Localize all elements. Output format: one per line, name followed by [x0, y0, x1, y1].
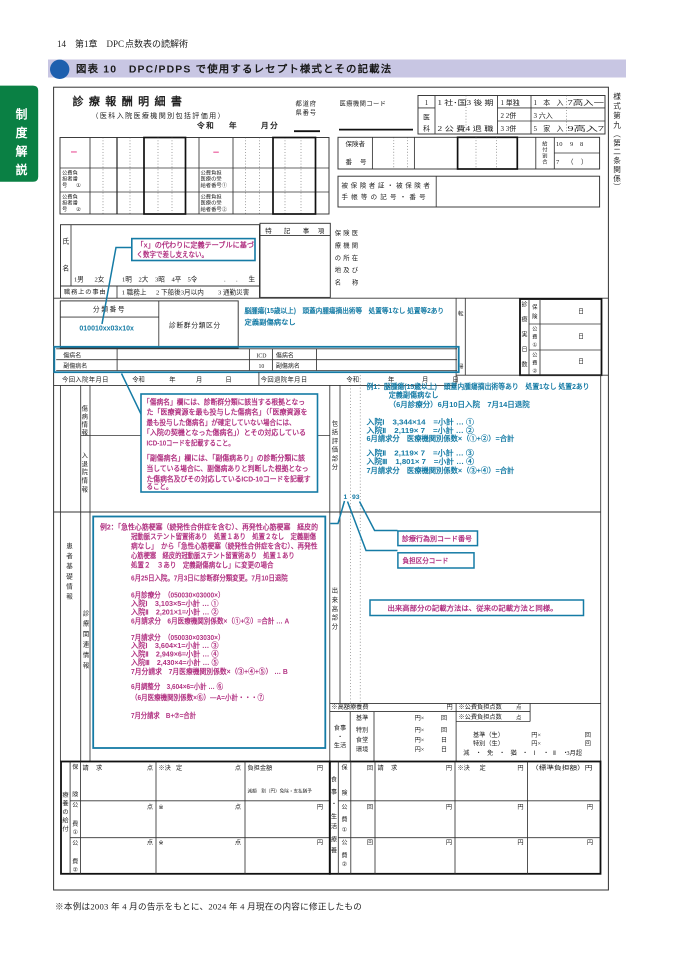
svg-text:副傷病名: 副傷病名 [63, 362, 87, 370]
svg-text:療: 療 [62, 791, 68, 799]
svg-text:情: 情 [82, 475, 89, 484]
svg-text:6月請求分 医療機関別係数×（①+②）=合計: 6月請求分 医療機関別係数×（①+②）=合計 [367, 434, 516, 443]
svg-text:氏: 氏 [62, 237, 69, 246]
svg-text:6月診療分 （050030×03000×）: 6月診療分 （050030×03000×） [131, 590, 225, 599]
svg-text:点: 点 [235, 764, 241, 772]
svg-text:例1：脳腫瘍(15歳以上) 頭蓋内腫瘍摘出術等あり 処置1な: 例1：脳腫瘍(15歳以上) 頭蓋内腫瘍摘出術等あり 処置1なし 処置2あり [367, 382, 590, 391]
svg-text:7高入一: 7高入一 [568, 98, 605, 107]
svg-text:（6月診療分）6月10日入院 7月14日退院: （6月診療分）6月10日入院 7月14日退院 [389, 400, 531, 409]
svg-text:回: 回 [367, 840, 373, 847]
svg-text:回: 回 [367, 765, 373, 772]
svg-text:円: 円 [517, 765, 523, 772]
svg-text:2 公 費4 退 職: 2 公 費4 退 職 [438, 124, 494, 133]
svg-text:1 社･国3 後 期: 1 社･国3 後 期 [438, 98, 494, 107]
svg-text:公費負担: 公費負担 [201, 169, 223, 177]
svg-text:患: 患 [66, 541, 73, 550]
svg-text:数: 数 [521, 361, 527, 369]
svg-text:※公費負担点数: ※公費負担点数 [459, 713, 503, 721]
svg-text:円: 円 [587, 840, 593, 847]
svg-text:項: 項 [318, 227, 325, 235]
svg-text:6月調整分 3,604×6=小計 … ⑥: 6月調整分 3,604×6=小計 … ⑥ [131, 682, 224, 691]
svg-text:療: 療 [83, 619, 90, 628]
svg-text:度: 度 [16, 126, 28, 140]
svg-text:減・免・猶・Ⅰ・Ⅱ・3月超: 減・免・猶・Ⅰ・Ⅱ・3月超 [463, 749, 582, 757]
svg-text:険: 険 [532, 312, 538, 320]
svg-text:診: 診 [521, 301, 527, 309]
svg-text:傷: 傷 [82, 403, 89, 412]
svg-text:給: 給 [62, 817, 69, 825]
svg-text:公費負: 公費負 [62, 193, 78, 201]
svg-text:出来高部分の記載方法は、従来の記載方法と同様。: 出来高部分の記載方法は、従来の記載方法と同様。 [388, 604, 558, 613]
svg-text:1: 1 [425, 99, 429, 107]
svg-text:条: 条 [613, 155, 621, 165]
svg-text:・: ・ [331, 801, 337, 808]
svg-text:脳腫瘍(15歳以上) 頭蓋内腫瘍摘出術等 処置等1なし 処置: 脳腫瘍(15歳以上) 頭蓋内腫瘍摘出術等 処置等1なし 処置等2あり [244, 306, 444, 315]
svg-text:公: 公 [72, 840, 78, 847]
svg-text:回: 回 [585, 740, 591, 747]
svg-text:解: 解 [16, 145, 28, 159]
svg-text:点: 点 [235, 803, 241, 811]
svg-text:円×: 円× [415, 746, 425, 753]
svg-text:最も投与した傷病名」が確定していない場合には、: 最も投与した傷病名」が確定していない場合には、 [147, 418, 296, 427]
svg-text:9高入7: 9高入7 [568, 124, 605, 133]
svg-text:図表 10 DPC/PDPS で使用するレセプト様式とその記: 図表 10 DPC/PDPS で使用するレセプト様式とその記載法 [76, 63, 392, 76]
svg-text:分: 分 [332, 621, 339, 630]
svg-text:報: 報 [83, 661, 90, 669]
svg-text:冠動脈ステント留置術あり 処置１あり 処置２なし 定義副傷: 冠動脈ステント留置術あり 処置１あり 処置２なし 定義副傷 [131, 532, 317, 541]
svg-text:心筋梗塞 経皮的冠動脈ステント留置術あり 処置１あり: 心筋梗塞 経皮的冠動脈ステント留置術あり 処置１あり [131, 551, 295, 560]
svg-text:円×: 円× [415, 737, 425, 744]
svg-text:情: 情 [83, 650, 90, 659]
svg-text:公費負: 公費負 [62, 169, 78, 177]
svg-text:円×: 円× [415, 727, 425, 734]
svg-text:点: 点 [147, 764, 153, 772]
svg-text:7月分請求 B+⑦=合計: 7月分請求 B+⑦=合計 [131, 711, 197, 720]
svg-text:①: ① [342, 827, 347, 834]
svg-text:円: 円 [517, 840, 523, 847]
svg-text:点: 点 [147, 803, 153, 811]
svg-text:付: 付 [62, 825, 68, 833]
svg-text:関: 関 [83, 630, 89, 638]
svg-text:公: 公 [72, 802, 78, 809]
svg-text:︵: ︵ [613, 130, 621, 139]
svg-text:環境: 環境 [356, 745, 368, 753]
svg-text:3 六入: 3 六入 [534, 111, 553, 120]
svg-text:（標準負担額）円: （標準負担額）円 [531, 764, 593, 772]
svg-text:地及び: 地及び [335, 265, 361, 274]
svg-text:負担区分コード: 負担区分コード [403, 556, 449, 565]
svg-text:点: 点 [516, 704, 522, 711]
svg-text:給: 給 [542, 140, 548, 148]
svg-text:93: 93 [352, 494, 360, 501]
svg-text:療: 療 [331, 836, 337, 844]
svg-text:特別（生）: 特別（生） [473, 739, 504, 747]
svg-text:負担金額: 負担金額 [248, 764, 273, 772]
svg-text:医療の受: 医療の受 [201, 199, 223, 207]
svg-text:点: 点 [147, 839, 153, 847]
svg-text:括: 括 [332, 427, 339, 436]
svg-text:1098: 1098 [556, 141, 583, 148]
svg-text:制: 制 [16, 108, 28, 122]
svg-text:1 単独: 1 単独 [501, 98, 520, 107]
svg-text:食事: 食事 [334, 724, 346, 732]
svg-text:（医科入院医療機関別包括評価用）: （医科入院医療機関別包括評価用） [92, 111, 226, 120]
svg-text:第: 第 [613, 110, 621, 120]
svg-text:当している場合に、副傷病ありと判断した根拠となっ: 当している場合に、副傷病ありと判断した根拠となっ [147, 464, 309, 473]
svg-text:①: ① [73, 829, 78, 836]
svg-text:円: 円 [317, 804, 323, 811]
svg-text:円: 円 [446, 765, 452, 772]
svg-text:定義副傷病なし: 定義副傷病なし [388, 391, 439, 400]
svg-text:名: 名 [62, 264, 69, 273]
svg-text:被保険者証・被保険者: 被保険者証・被保険者 [342, 180, 433, 189]
svg-text:科: 科 [423, 124, 430, 133]
svg-text:010010xx03x10x: 010010xx03x10x [79, 326, 134, 333]
svg-text:基準: 基準 [356, 714, 368, 722]
svg-text:関: 関 [613, 165, 621, 174]
svg-text:く数字で差し支えない。: く数字で差し支えない。 [137, 250, 209, 259]
svg-text:円: 円 [587, 804, 593, 811]
svg-text:価: 価 [332, 445, 338, 454]
svg-text:円×: 円× [531, 740, 541, 747]
svg-text:報: 報 [82, 429, 89, 437]
svg-text:高: 高 [332, 604, 338, 613]
svg-text:医療の受: 医療の受 [201, 175, 223, 183]
svg-text:説: 説 [16, 163, 28, 177]
svg-text:「傷病名」欄には、診断群分類に該当する根拠となっ: 「傷病名」欄には、診断群分類に該当する根拠となっ [143, 397, 305, 406]
svg-text:保: 保 [341, 764, 347, 772]
svg-text:保: 保 [72, 763, 78, 771]
svg-text:診療行為別コード番号: 診療行為別コード番号 [402, 534, 472, 543]
svg-text:入院Ⅲ 1,801× 7 =小計 … ④: 入院Ⅲ 1,801× 7 =小計 … ④ [365, 457, 474, 466]
svg-text:生: 生 [331, 813, 337, 821]
svg-text:3 3併: 3 3併 [501, 124, 517, 133]
svg-text:報: 報 [66, 593, 73, 601]
svg-text:回: 回 [441, 727, 447, 734]
svg-text:公費負担: 公費負担 [201, 193, 223, 201]
svg-text:入院Ⅱ 2,201×1=小計 … ②: 入院Ⅱ 2,201×1=小計 … ② [130, 608, 219, 617]
svg-text:※: ※ [159, 804, 164, 811]
svg-text:険: 険 [341, 789, 347, 797]
svg-text:養: 養 [331, 847, 337, 855]
svg-text:日: 日 [578, 359, 584, 366]
svg-text:た「医療資源を最も投与した傷病名」（「医療資源を: た「医療資源を最も投与した傷病名」（「医療資源を [147, 408, 308, 417]
svg-text:円×: 円× [415, 715, 425, 722]
svg-text:ICD: ICD [257, 353, 267, 359]
svg-text:手帳等の記号・番号: 手帳等の記号・番号 [342, 192, 429, 201]
svg-text:回: 回 [585, 732, 591, 739]
svg-text:6月請求分 6月医療機関別係数×（①+②）=合計 … A: 6月請求分 6月医療機関別係数×（①+②）=合計 … A [131, 616, 289, 625]
svg-text:※本例は2003 年 4 月の告示をもとに、2024 年 4: ※本例は2003 年 4 月の告示をもとに、2024 年 4 月現在の内容に修正… [55, 901, 362, 912]
svg-text:入院Ⅲ 2,430×4=小計 … ⑤: 入院Ⅲ 2,430×4=小計 … ⑤ [130, 658, 219, 667]
svg-text:県番号: 県番号 [296, 109, 317, 117]
svg-text:円: 円 [317, 840, 323, 847]
svg-text:※高額療養費: ※高額療養費 [331, 703, 368, 711]
svg-text:「x」の代わりに定義テーブルに基づ: 「x」の代わりに定義テーブルに基づ [137, 241, 255, 250]
svg-text:②: ② [342, 861, 347, 868]
svg-text:公: 公 [532, 353, 538, 359]
svg-text:費: 費 [72, 820, 78, 828]
svg-text:礎: 礎 [66, 571, 73, 580]
svg-text:第: 第 [613, 138, 621, 148]
svg-text:医: 医 [423, 114, 430, 122]
svg-text:職務上の事由: 職務上の事由 [64, 288, 107, 296]
svg-text:「入院の契機となった傷病名」）とその対応している: 「入院の契機となった傷病名」）とその対応している [143, 428, 306, 437]
svg-text:出: 出 [332, 585, 338, 594]
svg-text:※: ※ [159, 840, 164, 847]
svg-text:費: 費 [532, 333, 537, 341]
svg-text:都道府: 都道府 [296, 99, 317, 108]
svg-text:の所在: の所在 [335, 253, 361, 262]
svg-text:連: 連 [83, 640, 90, 649]
svg-text:担者番: 担者番 [62, 199, 79, 207]
svg-text:報: 報 [82, 485, 89, 493]
svg-text:14 第1章 DPC点数表の読解術: 14 第1章 DPC点数表の読解術 [57, 38, 188, 49]
svg-text:（6月医療機関別係数×⑥）―A=小計・・・⑦: （6月医療機関別係数×⑥）―A=小計・・・⑦ [131, 693, 265, 702]
svg-text:費: 費 [341, 852, 347, 860]
svg-text:二: 二 [613, 147, 621, 156]
svg-text:②: ② [73, 867, 78, 874]
svg-text:減額 割（円）免除・支払猶予: 減額 割（円）免除・支払猶予 [248, 788, 313, 795]
svg-text:診: 診 [83, 608, 90, 617]
svg-text:6月25日入院。7月3日に診断群分類変更。7月10日退院: 6月25日入院。7月3日に診断群分類変更。7月10日退院 [131, 574, 288, 583]
svg-text:評: 評 [332, 436, 339, 445]
svg-text:記: 記 [284, 226, 291, 235]
svg-text:療: 療 [521, 316, 527, 324]
svg-text:①: ① [532, 343, 537, 349]
svg-text:付: 付 [542, 146, 547, 154]
svg-text:給者番号②: 給者番号② [201, 205, 228, 213]
svg-text:回: 回 [441, 715, 447, 722]
svg-text:例2：「急性心筋梗塞（続発性合併症を含む）、再発性心筋梗塞: 例2：「急性心筋梗塞（続発性合併症を含む）、再発性心筋梗塞 経皮的 [100, 522, 318, 531]
svg-text:費: 費 [72, 858, 78, 866]
svg-text:様: 様 [613, 91, 621, 101]
svg-text:医療機関コード: 医療機関コード [340, 99, 387, 108]
svg-text:費: 費 [341, 816, 347, 824]
svg-text:令和年月分: 令和年月分 [196, 120, 279, 130]
svg-text:部: 部 [332, 453, 338, 462]
svg-text:来: 来 [332, 596, 339, 604]
svg-text:・: ・ [337, 734, 343, 741]
svg-text:事: 事 [331, 788, 337, 796]
svg-text:式: 式 [613, 101, 621, 111]
svg-text:日: 日 [521, 347, 527, 354]
svg-text:円: 円 [447, 704, 453, 711]
svg-text:生活: 生活 [334, 741, 346, 749]
svg-text:円: 円 [317, 765, 323, 772]
svg-text:特別: 特別 [356, 726, 368, 734]
svg-text:院: 院 [82, 467, 89, 476]
svg-text:険: 険 [72, 791, 78, 799]
svg-text:7月分請求 7月医療機関別係数×（③+④+⑤） … B: 7月分請求 7月医療機関別係数×（③+④+⑤） … B [131, 667, 288, 676]
svg-text:10: 10 [259, 364, 265, 370]
svg-text:処置２ ３あり 定義副傷病なし」に変更の場合: 処置２ ３あり 定義副傷病なし」に変更の場合 [130, 561, 274, 570]
svg-text:円: 円 [517, 804, 523, 811]
svg-text:傷病名: 傷病名 [63, 351, 81, 359]
svg-text:分類番号: 分類番号 [93, 305, 126, 314]
svg-text:7月請求分 医療機関別係数×（③+④）=合計: 7月請求分 医療機関別係数×（③+④）=合計 [367, 466, 516, 475]
svg-text:病: 病 [82, 411, 89, 420]
svg-text:実: 実 [521, 331, 527, 339]
svg-text:病なし」 から「急性心筋梗塞（続発性合併症を含む）、再発性: 病なし」 から「急性心筋梗塞（続発性合併症を含む）、再発性 [131, 542, 318, 551]
svg-text:食: 食 [331, 776, 338, 784]
svg-text:回: 回 [367, 804, 373, 811]
svg-text:︶: ︶ [613, 182, 621, 192]
svg-text:診療報酬明細書: 診療報酬明細書 [73, 94, 188, 108]
svg-text:分: 分 [332, 462, 339, 471]
svg-text:今回退院年月日: 今回退院年月日 [261, 375, 308, 384]
svg-text:の: の [62, 809, 68, 816]
svg-text:保険者: 保険者 [346, 139, 366, 148]
svg-text:保険医: 保険医 [335, 228, 361, 237]
svg-text:事: 事 [303, 226, 310, 235]
svg-text:情: 情 [66, 581, 73, 590]
svg-text:転: 転 [458, 311, 464, 318]
svg-text:※公費負担点数: ※公費負担点数 [459, 703, 503, 711]
svg-text:副傷病名: 副傷病名 [276, 362, 300, 370]
svg-text:今回入院年月日: 今回入院年月日 [62, 375, 109, 384]
svg-text:ICD-10コードを記載すること。: ICD-10コードを記載すること。 [147, 439, 235, 448]
svg-text:定義副傷病なし: 定義副傷病なし [245, 318, 296, 327]
svg-text:日: 日 [441, 746, 447, 753]
svg-text:退: 退 [82, 459, 89, 468]
svg-text:情: 情 [82, 420, 89, 429]
svg-text:日: 日 [578, 309, 584, 316]
svg-text:※決定: ※決定 [159, 764, 183, 772]
svg-text:者: 者 [66, 552, 73, 560]
svg-text:公: 公 [532, 327, 538, 333]
svg-text:療機関: 療機関 [335, 240, 361, 249]
svg-text:活: 活 [331, 823, 337, 831]
svg-text:割: 割 [542, 152, 547, 160]
svg-text:合: 合 [542, 158, 548, 166]
svg-text:診断群分類区分: 診断群分類区分 [169, 321, 221, 330]
svg-text:1: 1 [344, 494, 348, 501]
svg-text:担者番: 担者番 [62, 175, 79, 183]
svg-text:1 職務上2 下船後3月以内3 通勤災害: 1 職務上2 下船後3月以内3 通勤災害 [122, 287, 250, 296]
svg-text:九: 九 [613, 121, 621, 130]
svg-text:基: 基 [66, 561, 73, 570]
svg-text:費: 費 [532, 359, 537, 367]
svg-text:公: 公 [341, 804, 347, 811]
svg-text:円×: 円× [531, 732, 541, 739]
svg-text:基準（生）: 基準（生） [473, 731, 504, 739]
svg-text:日: 日 [441, 737, 447, 744]
svg-text:傷病名: 傷病名 [276, 351, 294, 359]
svg-text:点: 点 [516, 714, 522, 721]
svg-text:公: 公 [341, 840, 347, 847]
svg-text:ること。: ること。 [147, 482, 173, 491]
svg-text:保: 保 [532, 303, 538, 311]
svg-text:日: 日 [578, 334, 584, 341]
svg-text:部: 部 [332, 612, 338, 621]
svg-text:「副傷病名」欄には、「副傷病あり」の診断分類に該: 「副傷病名」欄には、「副傷病あり」の診断分類に該 [143, 454, 306, 463]
svg-text:食堂: 食堂 [356, 736, 368, 744]
svg-text:入: 入 [82, 452, 89, 459]
svg-text:円: 円 [446, 840, 452, 847]
svg-text:給者番号①: 給者番号① [201, 181, 228, 189]
svg-text:②: ② [532, 369, 537, 375]
svg-text:点: 点 [235, 839, 241, 847]
svg-text:養: 養 [62, 800, 68, 808]
svg-text:円: 円 [446, 804, 452, 811]
svg-text:特: 特 [265, 226, 272, 235]
svg-text:2 2併: 2 2併 [501, 111, 517, 120]
svg-text:包: 包 [332, 419, 339, 428]
